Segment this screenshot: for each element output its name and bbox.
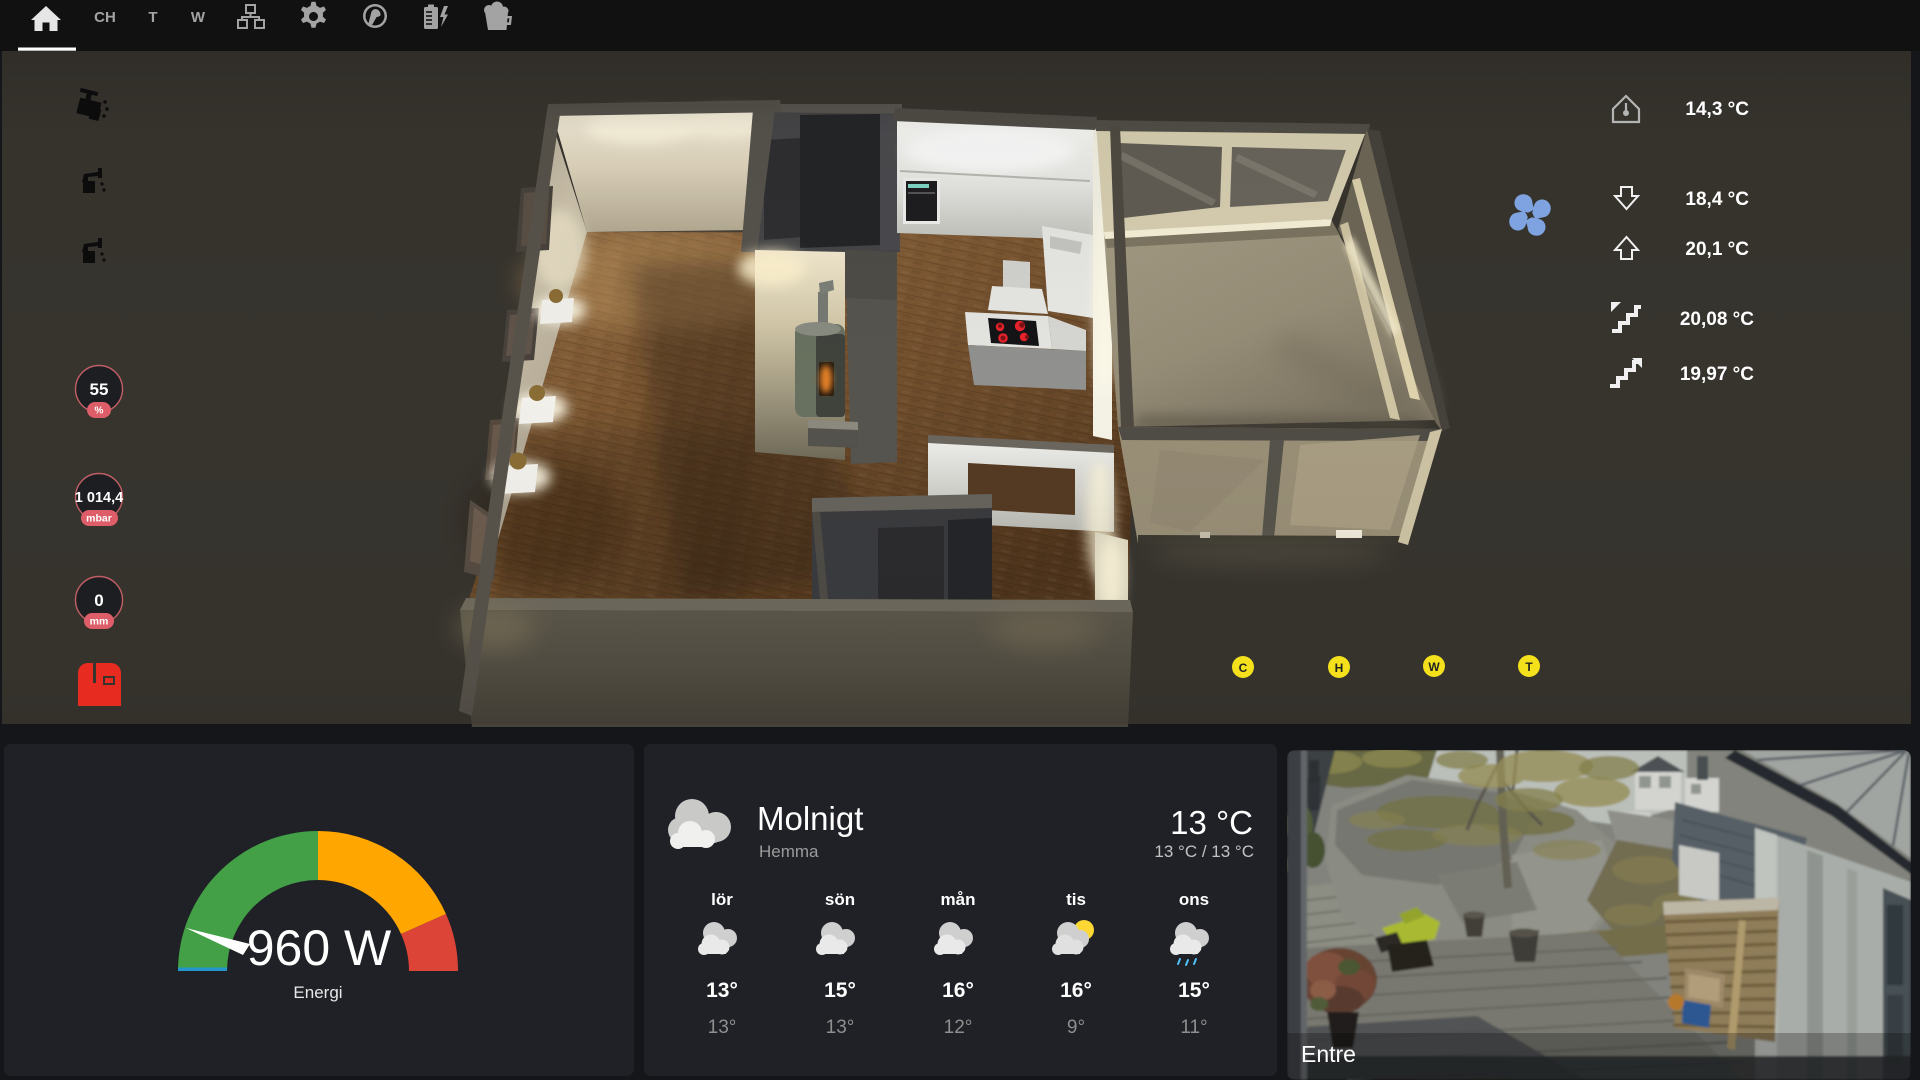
- svg-text:0: 0: [94, 591, 103, 610]
- svg-text:20,1 °C: 20,1 °C: [1685, 239, 1749, 260]
- svg-text:13°: 13°: [706, 979, 738, 1002]
- svg-text:tis: tis: [1066, 890, 1086, 909]
- svg-text:14,3 °C: 14,3 °C: [1685, 99, 1749, 120]
- svg-text:13°: 13°: [708, 1017, 737, 1038]
- svg-text:%: %: [95, 406, 104, 417]
- svg-text:960 W: 960 W: [247, 920, 392, 976]
- svg-text:mån: mån: [941, 890, 976, 909]
- svg-text:19,97 °C: 19,97 °C: [1680, 364, 1754, 385]
- svg-text:16°: 16°: [942, 979, 974, 1002]
- svg-text:mbar: mbar: [86, 513, 112, 525]
- svg-text:20,08 °C: 20,08 °C: [1680, 309, 1754, 330]
- svg-text:Energi: Energi: [293, 983, 342, 1002]
- svg-text:13°: 13°: [826, 1017, 855, 1038]
- svg-text:12°: 12°: [944, 1017, 973, 1038]
- svg-text:18,4 °C: 18,4 °C: [1685, 189, 1749, 210]
- svg-text:mm: mm: [90, 616, 109, 628]
- svg-text:H: H: [1335, 661, 1344, 675]
- svg-text:W: W: [1428, 660, 1440, 674]
- svg-text:Entre: Entre: [1301, 1041, 1356, 1067]
- svg-text:1 014,4: 1 014,4: [75, 490, 123, 506]
- svg-text:T: T: [1525, 660, 1533, 674]
- svg-text:55: 55: [90, 380, 109, 399]
- svg-text:lör: lör: [711, 890, 733, 909]
- svg-text:ons: ons: [1179, 890, 1209, 909]
- svg-text:C: C: [1239, 661, 1248, 675]
- svg-text:11°: 11°: [1180, 1017, 1207, 1038]
- svg-text:15°: 15°: [1178, 979, 1210, 1002]
- svg-text:9°: 9°: [1067, 1017, 1085, 1038]
- svg-text:15°: 15°: [824, 979, 856, 1002]
- svg-text:16°: 16°: [1060, 979, 1092, 1002]
- svg-text:sön: sön: [825, 890, 855, 909]
